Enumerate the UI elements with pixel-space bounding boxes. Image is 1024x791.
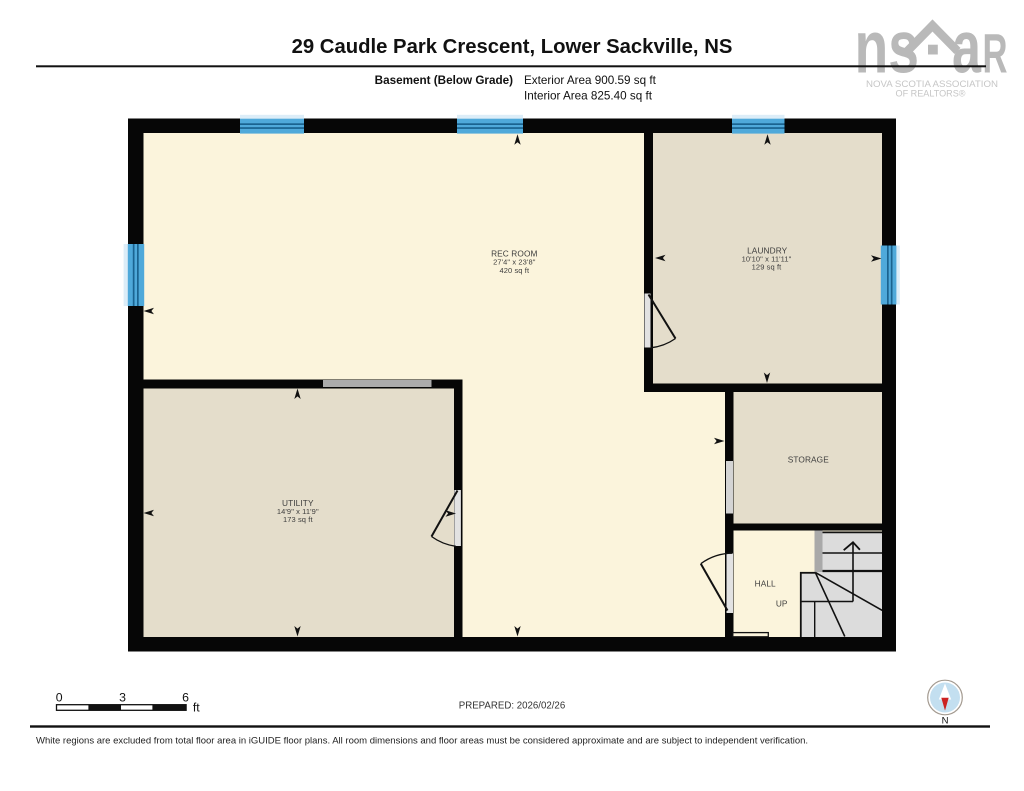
svg-text:NOVA SCOTIA ASSOCIATION: NOVA SCOTIA ASSOCIATION: [866, 79, 998, 89]
svg-text:White regions are excluded fro: White regions are excluded from total fl…: [36, 736, 808, 747]
svg-text:173 sq ft: 173 sq ft: [283, 515, 313, 524]
svg-text:Basement (Below Grade): Basement (Below Grade): [375, 74, 513, 87]
svg-text:129 sq ft: 129 sq ft: [752, 263, 782, 272]
svg-text:PREPARED: 2026/02/26: PREPARED: 2026/02/26: [459, 701, 565, 712]
svg-text:Interior Area 825.40 sq ft: Interior Area 825.40 sq ft: [524, 89, 653, 102]
svg-text:N: N: [942, 716, 949, 727]
svg-text:Exterior Area 900.59 sq ft: Exterior Area 900.59 sq ft: [524, 74, 657, 87]
svg-text:UP: UP: [776, 598, 788, 608]
svg-text:29 Caudle Park Crescent, Lower: 29 Caudle Park Crescent, Lower Sackville…: [292, 36, 733, 58]
svg-text:STORAGE: STORAGE: [788, 454, 829, 464]
svg-text:R: R: [983, 23, 1008, 85]
svg-text:OF REALTORS®: OF REALTORS®: [896, 88, 966, 98]
svg-text:3: 3: [119, 690, 126, 704]
svg-text:ft: ft: [193, 700, 200, 714]
svg-text:6: 6: [182, 690, 189, 704]
svg-text:0: 0: [56, 690, 63, 704]
svg-text:HALL: HALL: [755, 578, 776, 588]
svg-text:420 sq ft: 420 sq ft: [499, 266, 529, 275]
